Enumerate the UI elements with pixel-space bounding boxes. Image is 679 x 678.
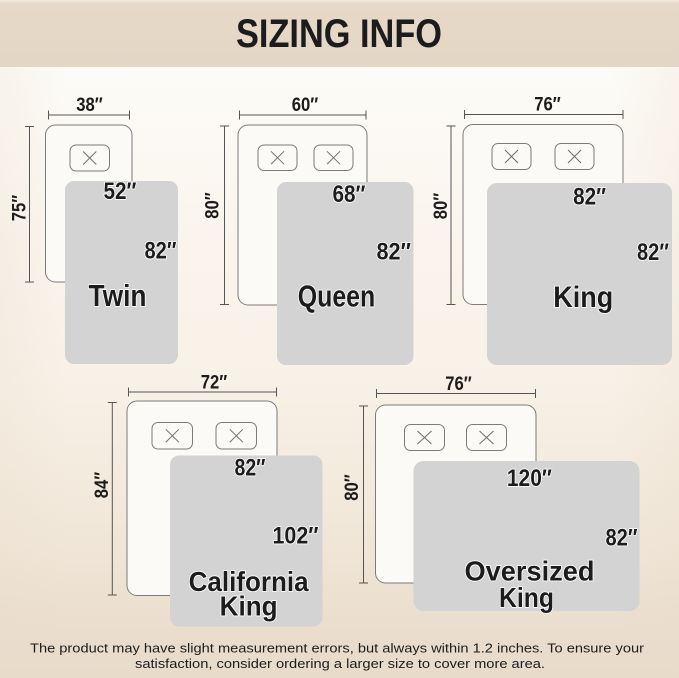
svg-text:82″: 82″: [637, 239, 669, 266]
svg-text:60″: 60″: [292, 95, 319, 116]
svg-text:Queen: Queen: [298, 280, 376, 314]
svg-text:Twin: Twin: [89, 279, 147, 313]
svg-text:76″: 76″: [534, 95, 561, 116]
svg-text:102″: 102″: [273, 522, 319, 549]
svg-text:76″: 76″: [445, 374, 472, 395]
svg-text:84″: 84″: [92, 472, 113, 499]
svg-text:68″: 68″: [333, 181, 366, 208]
svg-text:82″: 82″: [145, 238, 177, 265]
svg-text:82″: 82″: [377, 238, 412, 265]
svg-text:38″: 38″: [76, 95, 103, 116]
svg-text:80″: 80″: [342, 474, 363, 501]
svg-text:82″: 82″: [573, 183, 606, 210]
svg-text:72″: 72″: [201, 373, 228, 394]
svg-text:The product may have slight me: The product may have slight measurement …: [30, 641, 645, 656]
svg-text:52″: 52″: [104, 178, 137, 205]
svg-text:80″: 80″: [431, 193, 452, 220]
svg-text:75″: 75″: [10, 195, 31, 222]
svg-text:satisfaction, consider orderin: satisfaction, consider ordering a larger…: [135, 656, 545, 671]
svg-text:SIZING INFO: SIZING INFO: [236, 12, 442, 56]
svg-text:120″: 120″: [507, 465, 552, 492]
svg-text:King: King: [499, 582, 554, 613]
svg-text:80″: 80″: [203, 192, 224, 219]
svg-text:King: King: [553, 281, 613, 314]
svg-text:82″: 82″: [606, 524, 638, 551]
svg-text:82″: 82″: [235, 455, 266, 482]
svg-text:King: King: [220, 591, 278, 622]
